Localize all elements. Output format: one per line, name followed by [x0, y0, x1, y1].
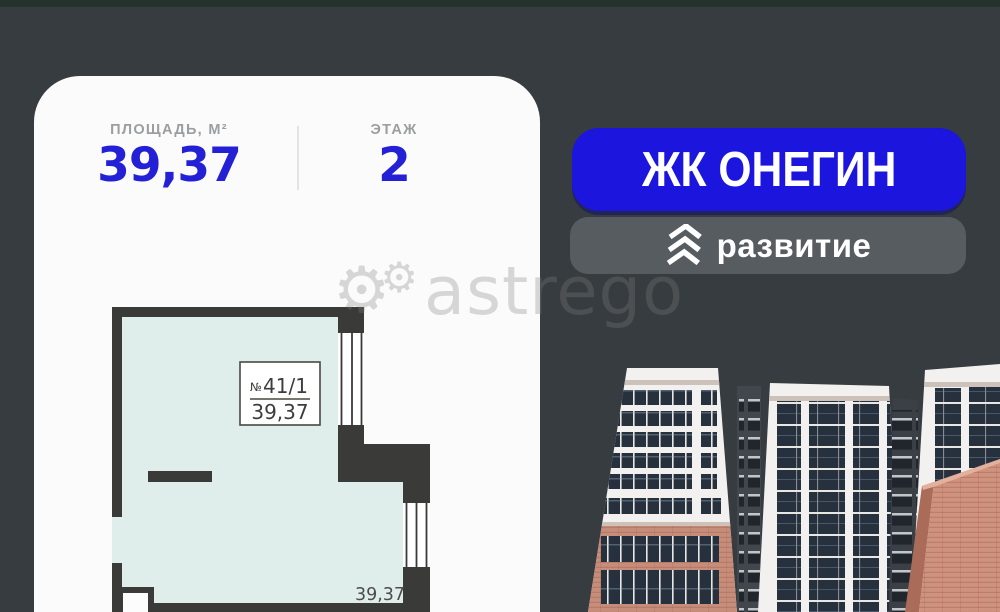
shaft-box: [117, 587, 154, 612]
developer-badge[interactable]: развитие: [570, 217, 966, 274]
floor-plan: № 41/1 39,37 39,37: [104, 301, 444, 612]
tower-left: [575, 358, 760, 612]
area-value: 39,37: [54, 141, 284, 191]
area-stat: ПЛОЩАДЬ, М² 39,37: [54, 122, 284, 191]
complex-name: ЖК ОНЕГИН: [642, 142, 896, 198]
promo-flyer: ПЛОЩАДЬ, М² 39,37 ЭТАЖ 2: [0, 0, 1000, 612]
complex-name-banner[interactable]: ЖК ОНЕГИН: [572, 128, 966, 211]
triple-chevron-up-icon: [665, 224, 705, 268]
area-label: ПЛОЩАДЬ, М²: [54, 122, 284, 138]
window-upper: [338, 333, 364, 425]
top-strip: [0, 0, 1000, 7]
unit-number: 41/1: [263, 374, 308, 398]
floor-value: 2: [324, 141, 464, 191]
unit-no-sign: №: [250, 380, 262, 394]
developer-name: развитие: [717, 227, 872, 265]
stat-divider: [297, 126, 299, 190]
balcony-shaft: [737, 386, 761, 612]
building-render: [555, 358, 1000, 612]
floor-label: ЭТАЖ: [324, 122, 464, 138]
unit-area: 39,37: [251, 400, 308, 424]
floor-stat: ЭТАЖ 2: [324, 122, 464, 191]
unit-label-box: № 41/1 39,37: [240, 362, 320, 425]
window-lower: [403, 503, 430, 567]
apartment-card: ПЛОЩАДЬ, М² 39,37 ЭТАЖ 2: [34, 76, 540, 612]
room-area-text: 39,37: [355, 585, 405, 605]
tower-middle: [755, 380, 905, 612]
